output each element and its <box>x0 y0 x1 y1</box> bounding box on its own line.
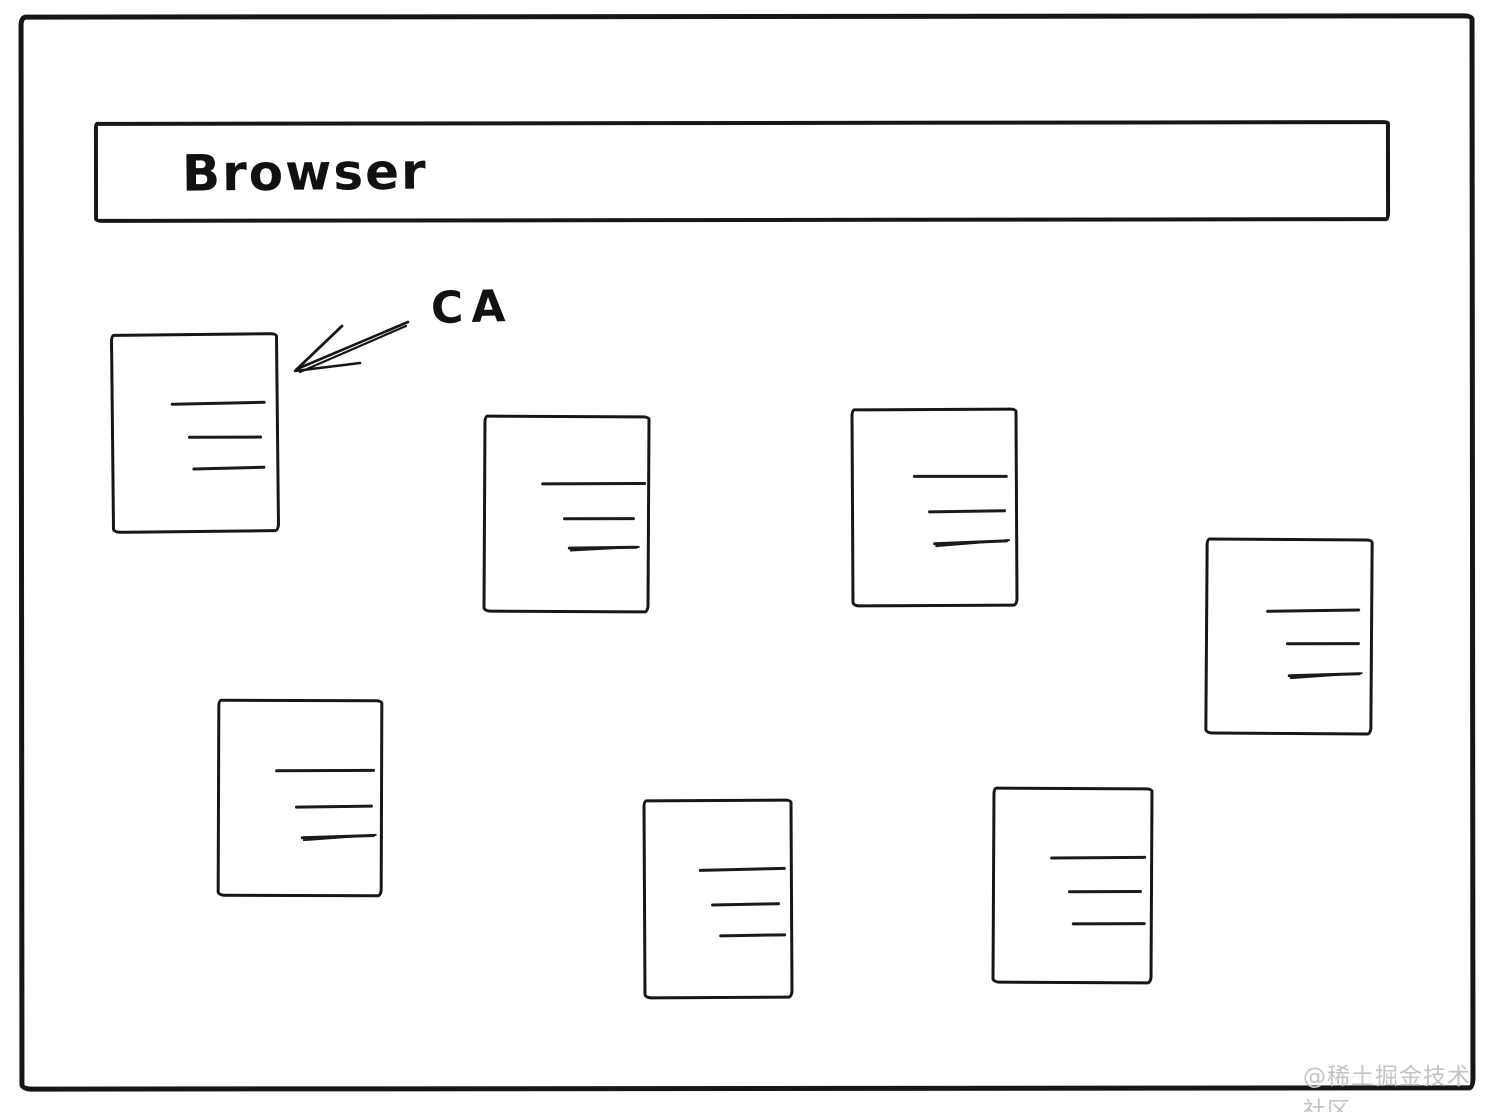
text-line <box>563 517 635 520</box>
text-line <box>192 466 265 471</box>
text-line <box>568 546 638 550</box>
watermark: @稀土掘金技术社区 <box>1303 1057 1493 1112</box>
text-line <box>711 902 780 906</box>
certificate-card <box>217 699 384 898</box>
text-line <box>1072 922 1146 925</box>
certificate-card <box>110 332 280 534</box>
text-line <box>719 933 786 937</box>
text-line <box>295 805 373 809</box>
text-line <box>1266 609 1360 613</box>
text-line <box>933 539 1008 545</box>
text-line <box>188 436 262 439</box>
text-line <box>1068 890 1142 893</box>
text-line <box>1050 856 1146 860</box>
text-line <box>699 867 786 872</box>
certificate-card <box>482 415 650 614</box>
certificate-card <box>991 787 1153 985</box>
text-line <box>171 401 266 406</box>
certificate-card <box>642 799 793 1000</box>
certificate-card <box>850 408 1018 608</box>
certificate-card <box>1204 537 1373 735</box>
text-line <box>1288 672 1361 677</box>
ca-label: CA <box>430 281 514 334</box>
text-line <box>301 834 375 839</box>
text-line <box>541 482 646 485</box>
sketch-canvas: Browser CA <box>0 0 1493 1112</box>
browser-bar: Browser <box>94 120 1390 223</box>
text-line <box>275 769 375 772</box>
ca-arrow-icon <box>288 302 433 382</box>
text-line <box>1286 642 1360 645</box>
text-line <box>913 475 1008 478</box>
text-line <box>928 509 1006 513</box>
browser-label: Browser <box>182 142 428 202</box>
